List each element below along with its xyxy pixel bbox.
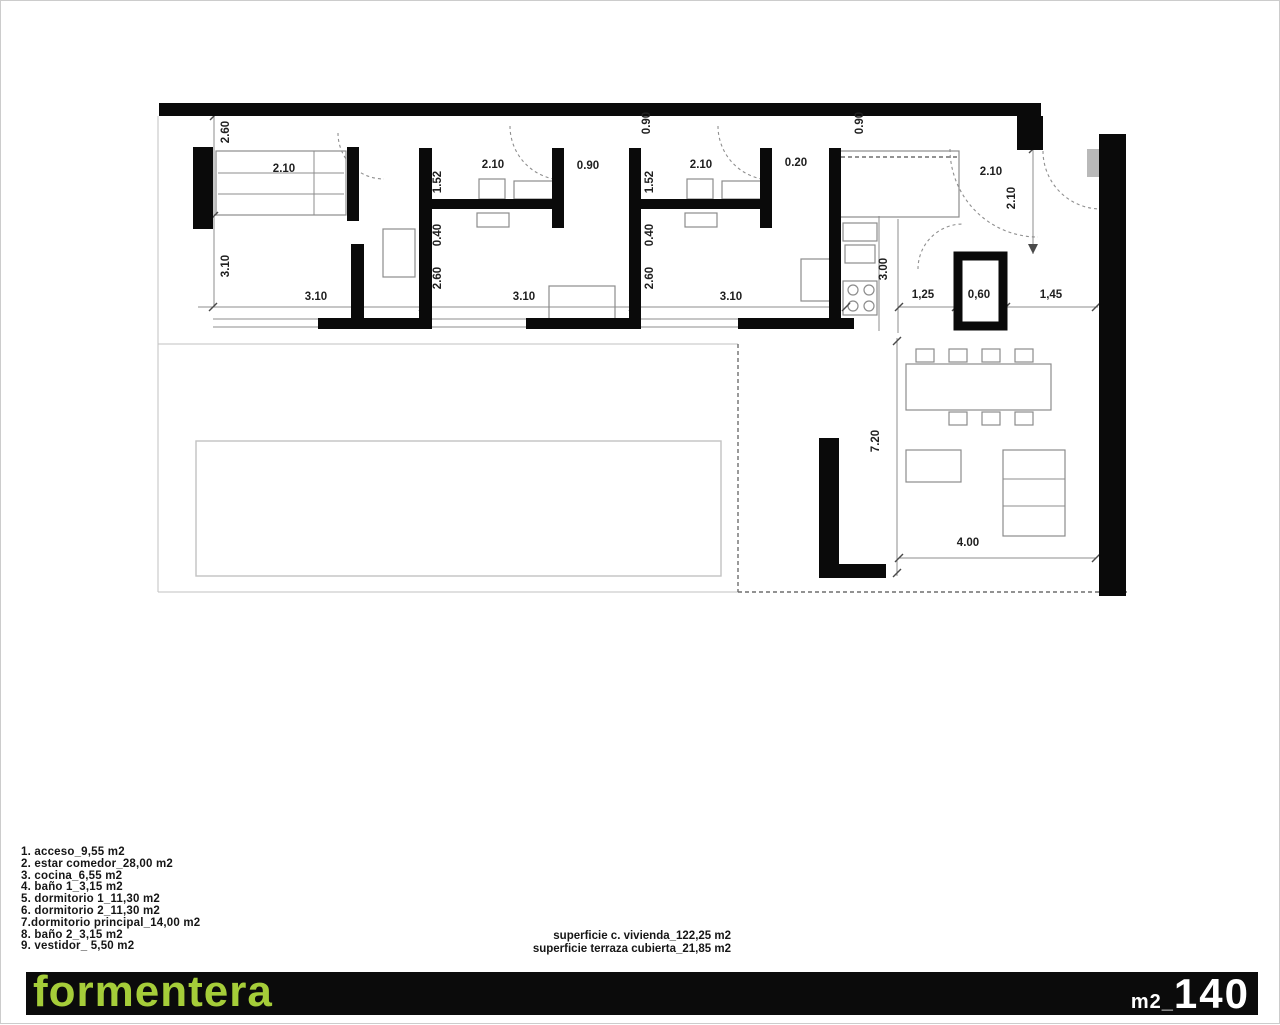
footer-title-bar: formentera m2_ 140 (26, 972, 1258, 1015)
area-tag: m2_ 140 (1131, 972, 1258, 1015)
dimension-label: 3.10 (305, 291, 327, 303)
dimension-label: 2.10 (482, 159, 504, 171)
wall (819, 438, 839, 578)
furniture-outline (982, 412, 1000, 425)
dimension-label: 1.52 (432, 171, 444, 193)
wall (159, 103, 1041, 116)
wall (738, 318, 854, 329)
room-legend: 1. acceso_9,55 m2 2. estar comedor_28,00… (21, 847, 200, 953)
dimension-label: 2.60 (432, 267, 444, 289)
furniture-outline (839, 151, 959, 217)
furniture-outline (216, 151, 346, 215)
wall (819, 564, 886, 578)
stove-burner (848, 285, 858, 295)
furniture-outline (479, 179, 505, 199)
dimension-label: 3.10 (220, 255, 232, 277)
dimension-label: 0,60 (968, 289, 990, 301)
dimension-label: 4.00 (957, 537, 979, 549)
dimension-label: 3.00 (878, 258, 890, 280)
wall (1017, 116, 1043, 150)
area-unit-label: m2_ (1131, 991, 1174, 1014)
dimension-label: 2.60 (220, 121, 232, 143)
furniture-outline (906, 450, 961, 482)
floorplan-sheet: { "footer": { "brand": "formentera", "ar… (0, 0, 1280, 1024)
furniture-outline (1003, 450, 1065, 536)
furniture-outline (722, 181, 762, 199)
dimension-label: 0.90 (854, 112, 866, 134)
wall (419, 148, 432, 329)
dimension-label: 7.20 (870, 430, 882, 452)
furniture-outline (949, 412, 967, 425)
wall (351, 244, 364, 329)
legend-item: 6. dormitorio 2_11,30 m2 (21, 906, 200, 918)
furniture-outline (845, 245, 875, 263)
dimension-label: 2.10 (980, 166, 1002, 178)
surface-vivienda: superficie c. vivienda_122,25 m2 (331, 930, 731, 943)
furniture-outline (982, 349, 1000, 362)
wall (1099, 134, 1126, 596)
furniture-outline (949, 349, 967, 362)
dimension-label: 1.52 (644, 171, 656, 193)
furniture-outline (1015, 412, 1033, 425)
stove-burner (848, 301, 858, 311)
wall (552, 148, 564, 228)
wall (760, 148, 772, 228)
furniture-outline (383, 229, 415, 277)
door-swing-arc (950, 149, 1038, 237)
legend-item: 7.dormitorio principal_14,00 m2 (21, 918, 200, 930)
furniture-outline (906, 364, 1051, 410)
furniture-outline (477, 213, 509, 227)
wall (347, 147, 359, 221)
dimension-label: 0.90 (641, 112, 653, 134)
dimension-label: 0.90 (577, 160, 599, 172)
dimension-label: 0.40 (432, 224, 444, 246)
dimension-label: 3.10 (513, 291, 535, 303)
door-leaf (1087, 149, 1100, 177)
dimension-label: 0.20 (785, 157, 807, 169)
stove-burner (864, 285, 874, 295)
legend-item: 9. vestidor_ 5,50 m2 (21, 941, 200, 953)
door-swing-arc (338, 133, 384, 179)
wall (193, 147, 213, 229)
dimension-label: 1,25 (912, 289, 935, 301)
dimension-label: 2.60 (644, 267, 656, 289)
dimension-label: 0.40 (644, 224, 656, 246)
brand-logo: formentera (26, 970, 273, 1013)
stove-burner (864, 301, 874, 311)
dimension-label: 2.10 (273, 163, 295, 175)
wall (318, 318, 419, 329)
wall (829, 148, 841, 326)
furniture-outline (514, 181, 554, 199)
surface-summary: superficie c. vivienda_122,25 m2 superfi… (331, 930, 731, 955)
dimension-label: 2.10 (690, 159, 712, 171)
area-value: 140 (1174, 972, 1250, 1015)
furniture-outline (843, 223, 877, 241)
furniture-outline (1015, 349, 1033, 362)
dimension-label: 2.10 (1006, 187, 1018, 209)
pool-outline (196, 441, 721, 576)
furniture-outline (916, 349, 934, 362)
wall (629, 199, 772, 209)
furniture-outline (685, 213, 717, 227)
dimension-label: 3.10 (720, 291, 742, 303)
dim-arrow (1028, 244, 1038, 254)
legend-item: 2. estar comedor_28,00 m2 (21, 859, 200, 871)
surface-terraza: superficie terraza cubierta_21,85 m2 (331, 943, 731, 956)
wall (419, 199, 564, 209)
dimension-label: 1,45 (1040, 289, 1063, 301)
wall (526, 318, 629, 329)
furniture-outline (687, 179, 713, 199)
wall (629, 148, 641, 329)
